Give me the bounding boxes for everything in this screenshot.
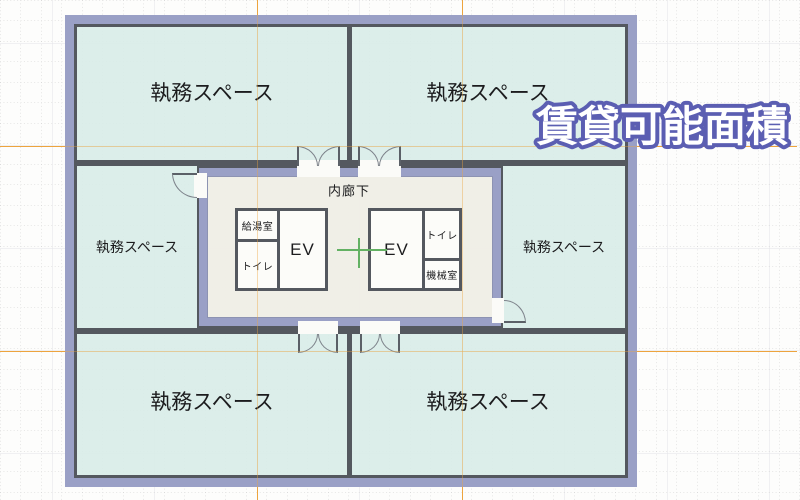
guide-line-vertical-2 — [462, 0, 463, 500]
room-elevator-right-label: EV — [384, 240, 409, 260]
office-label-bottom-left: 執務スペース — [150, 386, 273, 416]
drawing-canvas: 給湯室 トイレ EV EV トイレ 機械室 内廊下 執務スペース 執務スペース … — [0, 0, 800, 500]
wordart-title-text: 賃貸可能面積 — [535, 103, 788, 150]
room-machine[interactable]: 機械室 — [422, 258, 462, 291]
room-elevator-left-label: EV — [290, 240, 315, 260]
guide-line-horizontal-2 — [0, 351, 797, 352]
office-label-mid-left: 執務スペース — [96, 237, 178, 257]
room-elevator-left[interactable]: EV — [277, 208, 328, 291]
center-cross-marker-v[interactable] — [358, 238, 360, 268]
room-toilet-right-label: トイレ — [426, 227, 458, 242]
guide-line-vertical-1 — [257, 0, 258, 500]
door-opening-bottom-1 — [298, 321, 338, 334]
office-label-bottom-right: 執務スペース — [426, 386, 549, 416]
corridor-label: 内廊下 — [328, 181, 370, 200]
office-label-top-left: 執務スペース — [150, 77, 273, 107]
room-toilet-right[interactable]: トイレ — [422, 208, 462, 261]
wordart-title[interactable]: 賃貸可能面積 賃貸可能面積 — [524, 99, 800, 153]
office-label-mid-right: 執務スペース — [523, 237, 605, 257]
wall-center-top[interactable] — [347, 27, 352, 160]
wall-center-bottom[interactable] — [347, 334, 352, 475]
door-opening-core-right — [492, 298, 504, 323]
room-machine-label: 機械室 — [426, 267, 458, 282]
door-opening-bottom-2 — [360, 321, 400, 334]
center-cross-marker-h[interactable] — [337, 249, 387, 251]
